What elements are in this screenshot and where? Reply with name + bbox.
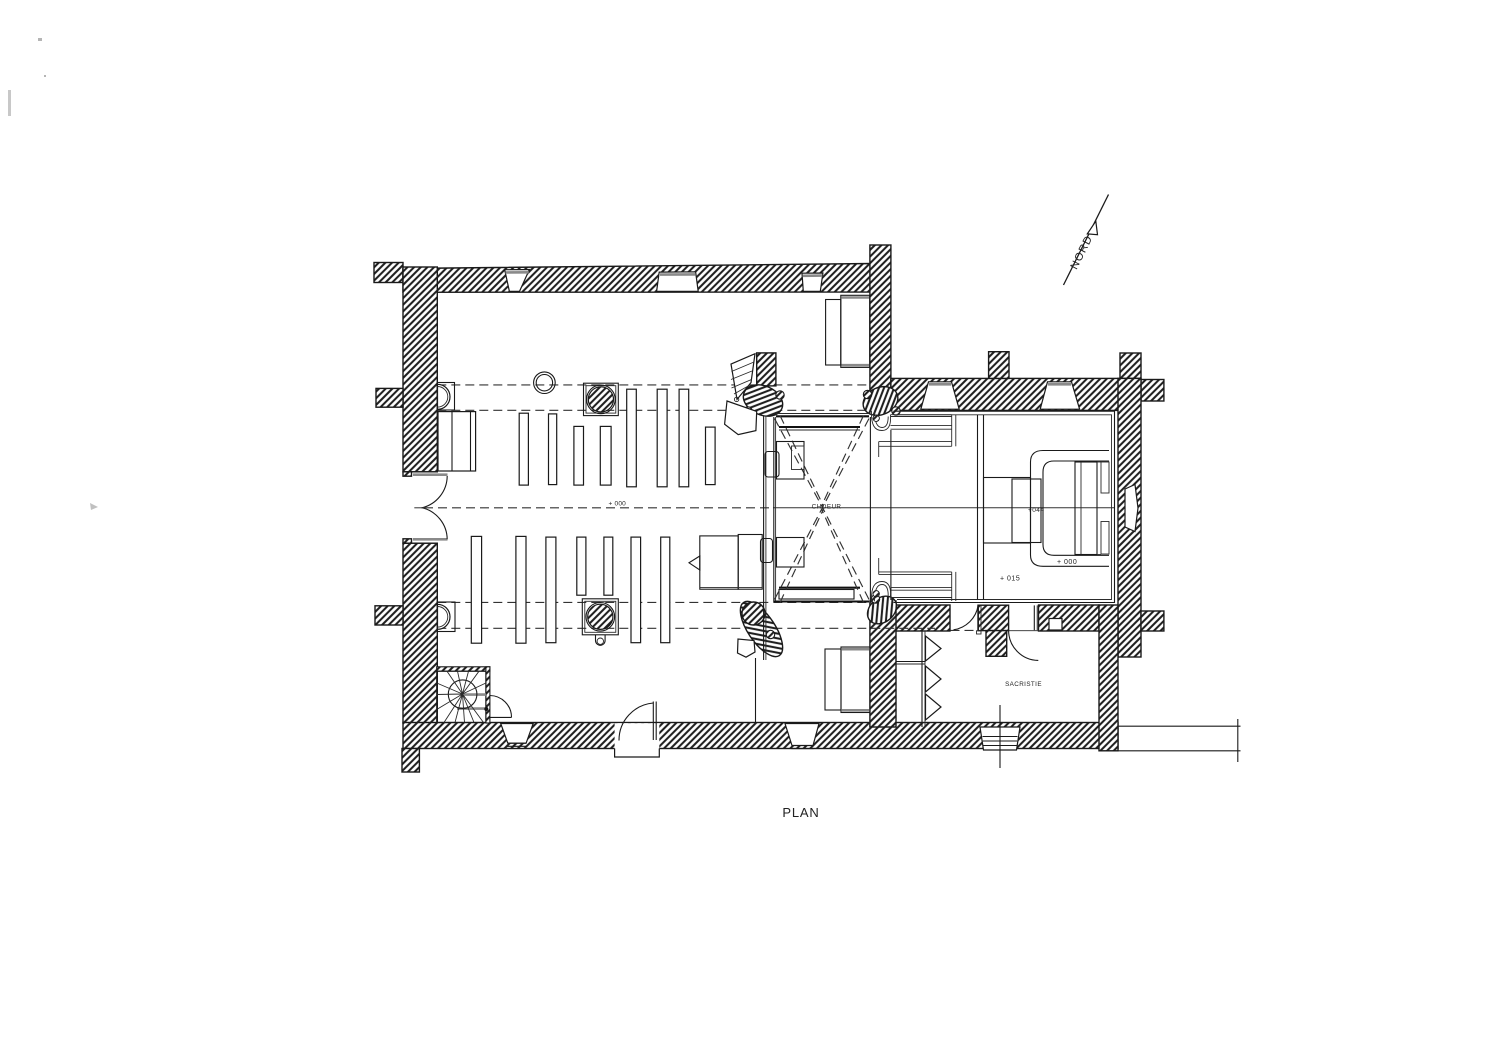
- svg-text:+ 000: + 000: [1057, 559, 1077, 566]
- svg-text:CHOEUR: CHOEUR: [812, 504, 842, 511]
- svg-text:+ 000: + 000: [609, 501, 627, 508]
- svg-text:PLAN: PLAN: [782, 805, 819, 820]
- svg-text:SACRISTIE: SACRISTIE: [1005, 681, 1042, 688]
- svg-text:+ 015: + 015: [1000, 576, 1020, 583]
- svg-text:+044: +044: [1028, 507, 1044, 514]
